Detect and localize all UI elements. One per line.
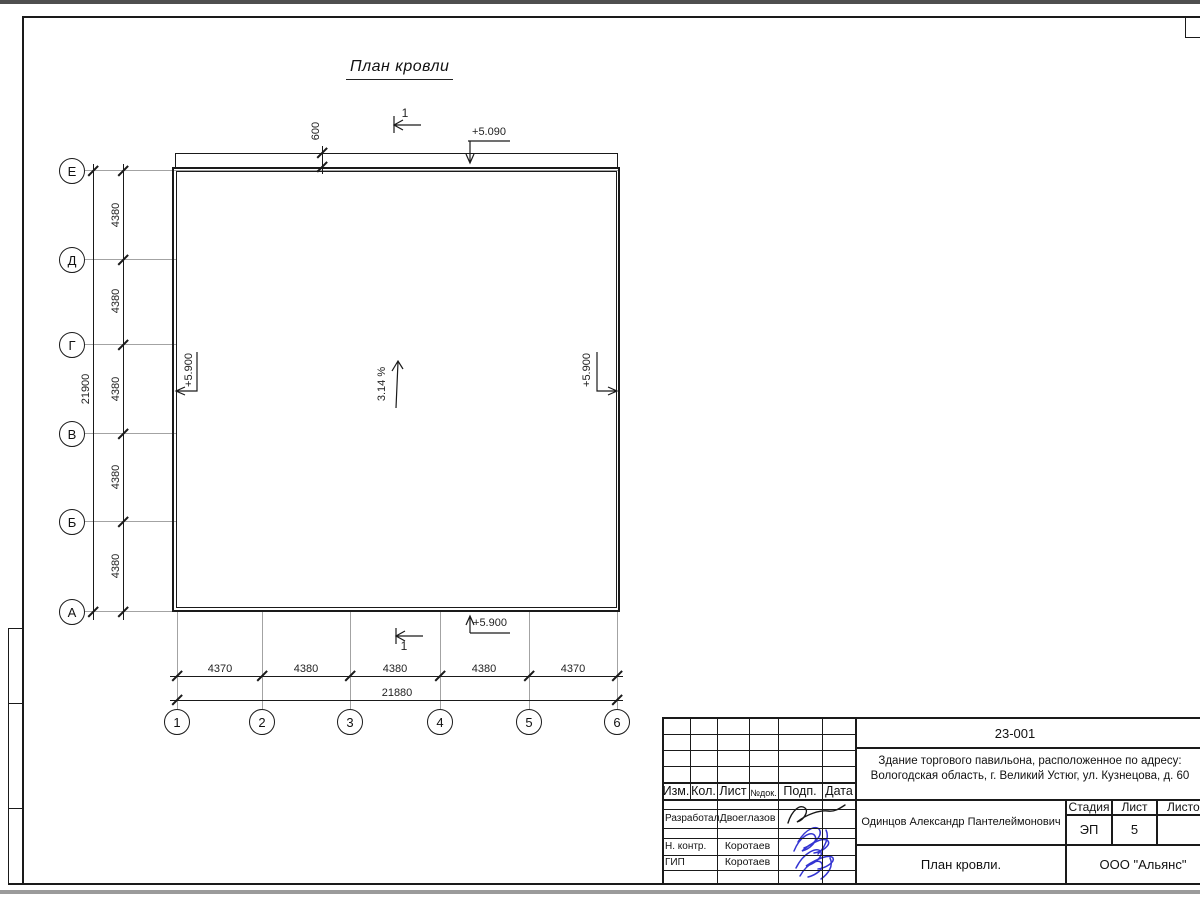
titleblock-line [856,747,1200,749]
axis-line-2 [262,612,263,709]
titleblock-line [662,750,856,751]
signature-gip [800,858,831,879]
axis-line-A [85,611,172,612]
axis-line-6 [617,612,618,709]
axis-label: 2 [258,715,265,730]
roof-outline-inner [176,171,617,608]
axis-bubble-G: Г [59,332,85,358]
dim-label: 4380 [110,452,122,502]
axis-label: 4 [436,715,443,730]
titleblock-line [662,870,856,871]
titleblock-line [778,800,779,884]
roof-canopy-strip [175,153,618,168]
titleblock-line [1156,799,1158,845]
elevation-label-left: +5.900 [183,345,195,395]
signature-gip [796,850,833,869]
axis-label: Е [68,164,77,179]
author-name: Одинцов Александр Пантелеймонович [861,816,1061,828]
titleblock-line [856,844,1200,846]
axis-label: Г [68,338,75,353]
dim-line-left-segments [123,164,124,620]
axis-line-3 [350,612,351,709]
role-ncontrol: Н. контр. [665,841,706,852]
axis-bubble-A: А [59,599,85,625]
titleblock-line [662,828,856,829]
titleblock-line [822,800,823,884]
titleblock-line [662,766,856,767]
dim-line-bottom-segments [170,676,623,677]
header-izm: Изм. [662,784,690,798]
dim-label: 4370 [195,663,245,675]
dim-label: 4380 [110,190,122,240]
corner-box-line [1185,16,1186,37]
axis-label: 3 [346,715,353,730]
axis-label: 6 [613,715,620,730]
filing-box-line [8,628,22,629]
axis-bubble-5: 5 [516,709,542,735]
titleblock-line [855,717,857,885]
dim-label-total: 21900 [80,364,92,414]
drawing-name: План кровли. [861,857,1061,872]
name-gip: Коротаев [717,856,778,868]
header-data: Дата [822,784,856,798]
axis-bubble-E: Е [59,158,85,184]
titleblock-line [662,734,856,735]
dim-label-overhang: 600 [310,106,322,156]
axis-bubble-V: В [59,421,85,447]
titleblock-line [662,838,856,839]
axis-line-5 [529,612,530,709]
axis-line-V [85,433,176,434]
axis-bubble-2: 2 [249,709,275,735]
header-kol: Кол. [690,784,717,798]
axis-bubble-B: Б [59,509,85,535]
axis-line-D [85,259,176,260]
project-address-line1: Здание торгового павильона, расположенно… [858,755,1200,767]
dim-label-total: 21880 [372,687,422,699]
sheets-label: Листов [1159,800,1200,814]
dim-line-left-total [93,164,94,620]
role-developer: Разработал [665,813,719,824]
section-mark-label-bottom: 1 [398,639,410,653]
axis-label: Б [68,515,77,530]
axis-bubble-1: 1 [164,709,190,735]
page-top-edge [0,0,1200,4]
drawing-sheet: План кровли Е Д Г В Б А 1 2 3 4 5 6 [0,0,1200,900]
frame-bottom [8,883,1200,885]
axis-bubble-D: Д [59,247,85,273]
axis-label: 1 [173,715,180,730]
axis-label: Д [68,253,77,268]
axis-bubble-4: 4 [427,709,453,735]
axis-bubble-3: 3 [337,709,363,735]
sheet-label: Лист [1113,800,1156,814]
axis-line-B [85,521,176,522]
name-ncontrol: Коротаев [717,840,778,852]
dim-line-bottom-total [170,700,623,701]
dim-label: 4380 [459,663,509,675]
signature-ncontrol [794,834,829,853]
filing-box-line [8,628,9,884]
doc-number: 23-001 [965,726,1065,741]
header-ndok: №док. [749,788,778,798]
elevation-label-right: +5.900 [581,345,593,395]
axis-line-G [85,344,176,345]
filing-box-line [8,808,22,809]
stage-label: Стадия [1067,800,1111,814]
name-developer: Двоеглазов [717,812,778,824]
dim-label: 4380 [110,541,122,591]
axis-label: А [68,605,77,620]
frame-left [22,16,24,885]
dim-label: 4370 [548,663,598,675]
section-mark-label-top: 1 [399,106,411,120]
titleblock-line [662,809,856,810]
stage-value: ЭП [1067,822,1111,837]
dim-label: 4380 [281,663,331,675]
dim-label: 4380 [370,663,420,675]
axis-line-1 [177,612,178,709]
drawing-title: План кровли [346,58,453,80]
titleblock-line [662,717,1200,719]
dim-label: 4380 [110,364,122,414]
axis-label: 5 [525,715,532,730]
header-podp: Подп. [778,784,822,798]
elevation-label-bottom: +5.900 [465,617,515,629]
frame-top [22,16,1200,18]
titleblock-line [1066,814,1200,816]
titleblock-line [662,717,664,885]
axis-line-4 [440,612,441,709]
axis-bubble-6: 6 [604,709,630,735]
project-address-line2: Вологодская область, г. Великий Устюг, у… [858,770,1200,782]
corner-box-line [1185,37,1200,38]
header-list: Лист [717,784,749,798]
sheet-value: 5 [1113,822,1156,837]
role-gip: ГИП [665,857,685,868]
elevation-label-top: +5.090 [464,126,514,138]
page-bottom-edge [0,890,1200,894]
signature-developer [788,805,845,823]
company-name: ООО "Альянс" [1068,857,1200,872]
filing-box-line [8,703,22,704]
dim-label: 4380 [110,276,122,326]
slope-label: 3.14 % [376,359,388,409]
axis-label: В [68,427,77,442]
